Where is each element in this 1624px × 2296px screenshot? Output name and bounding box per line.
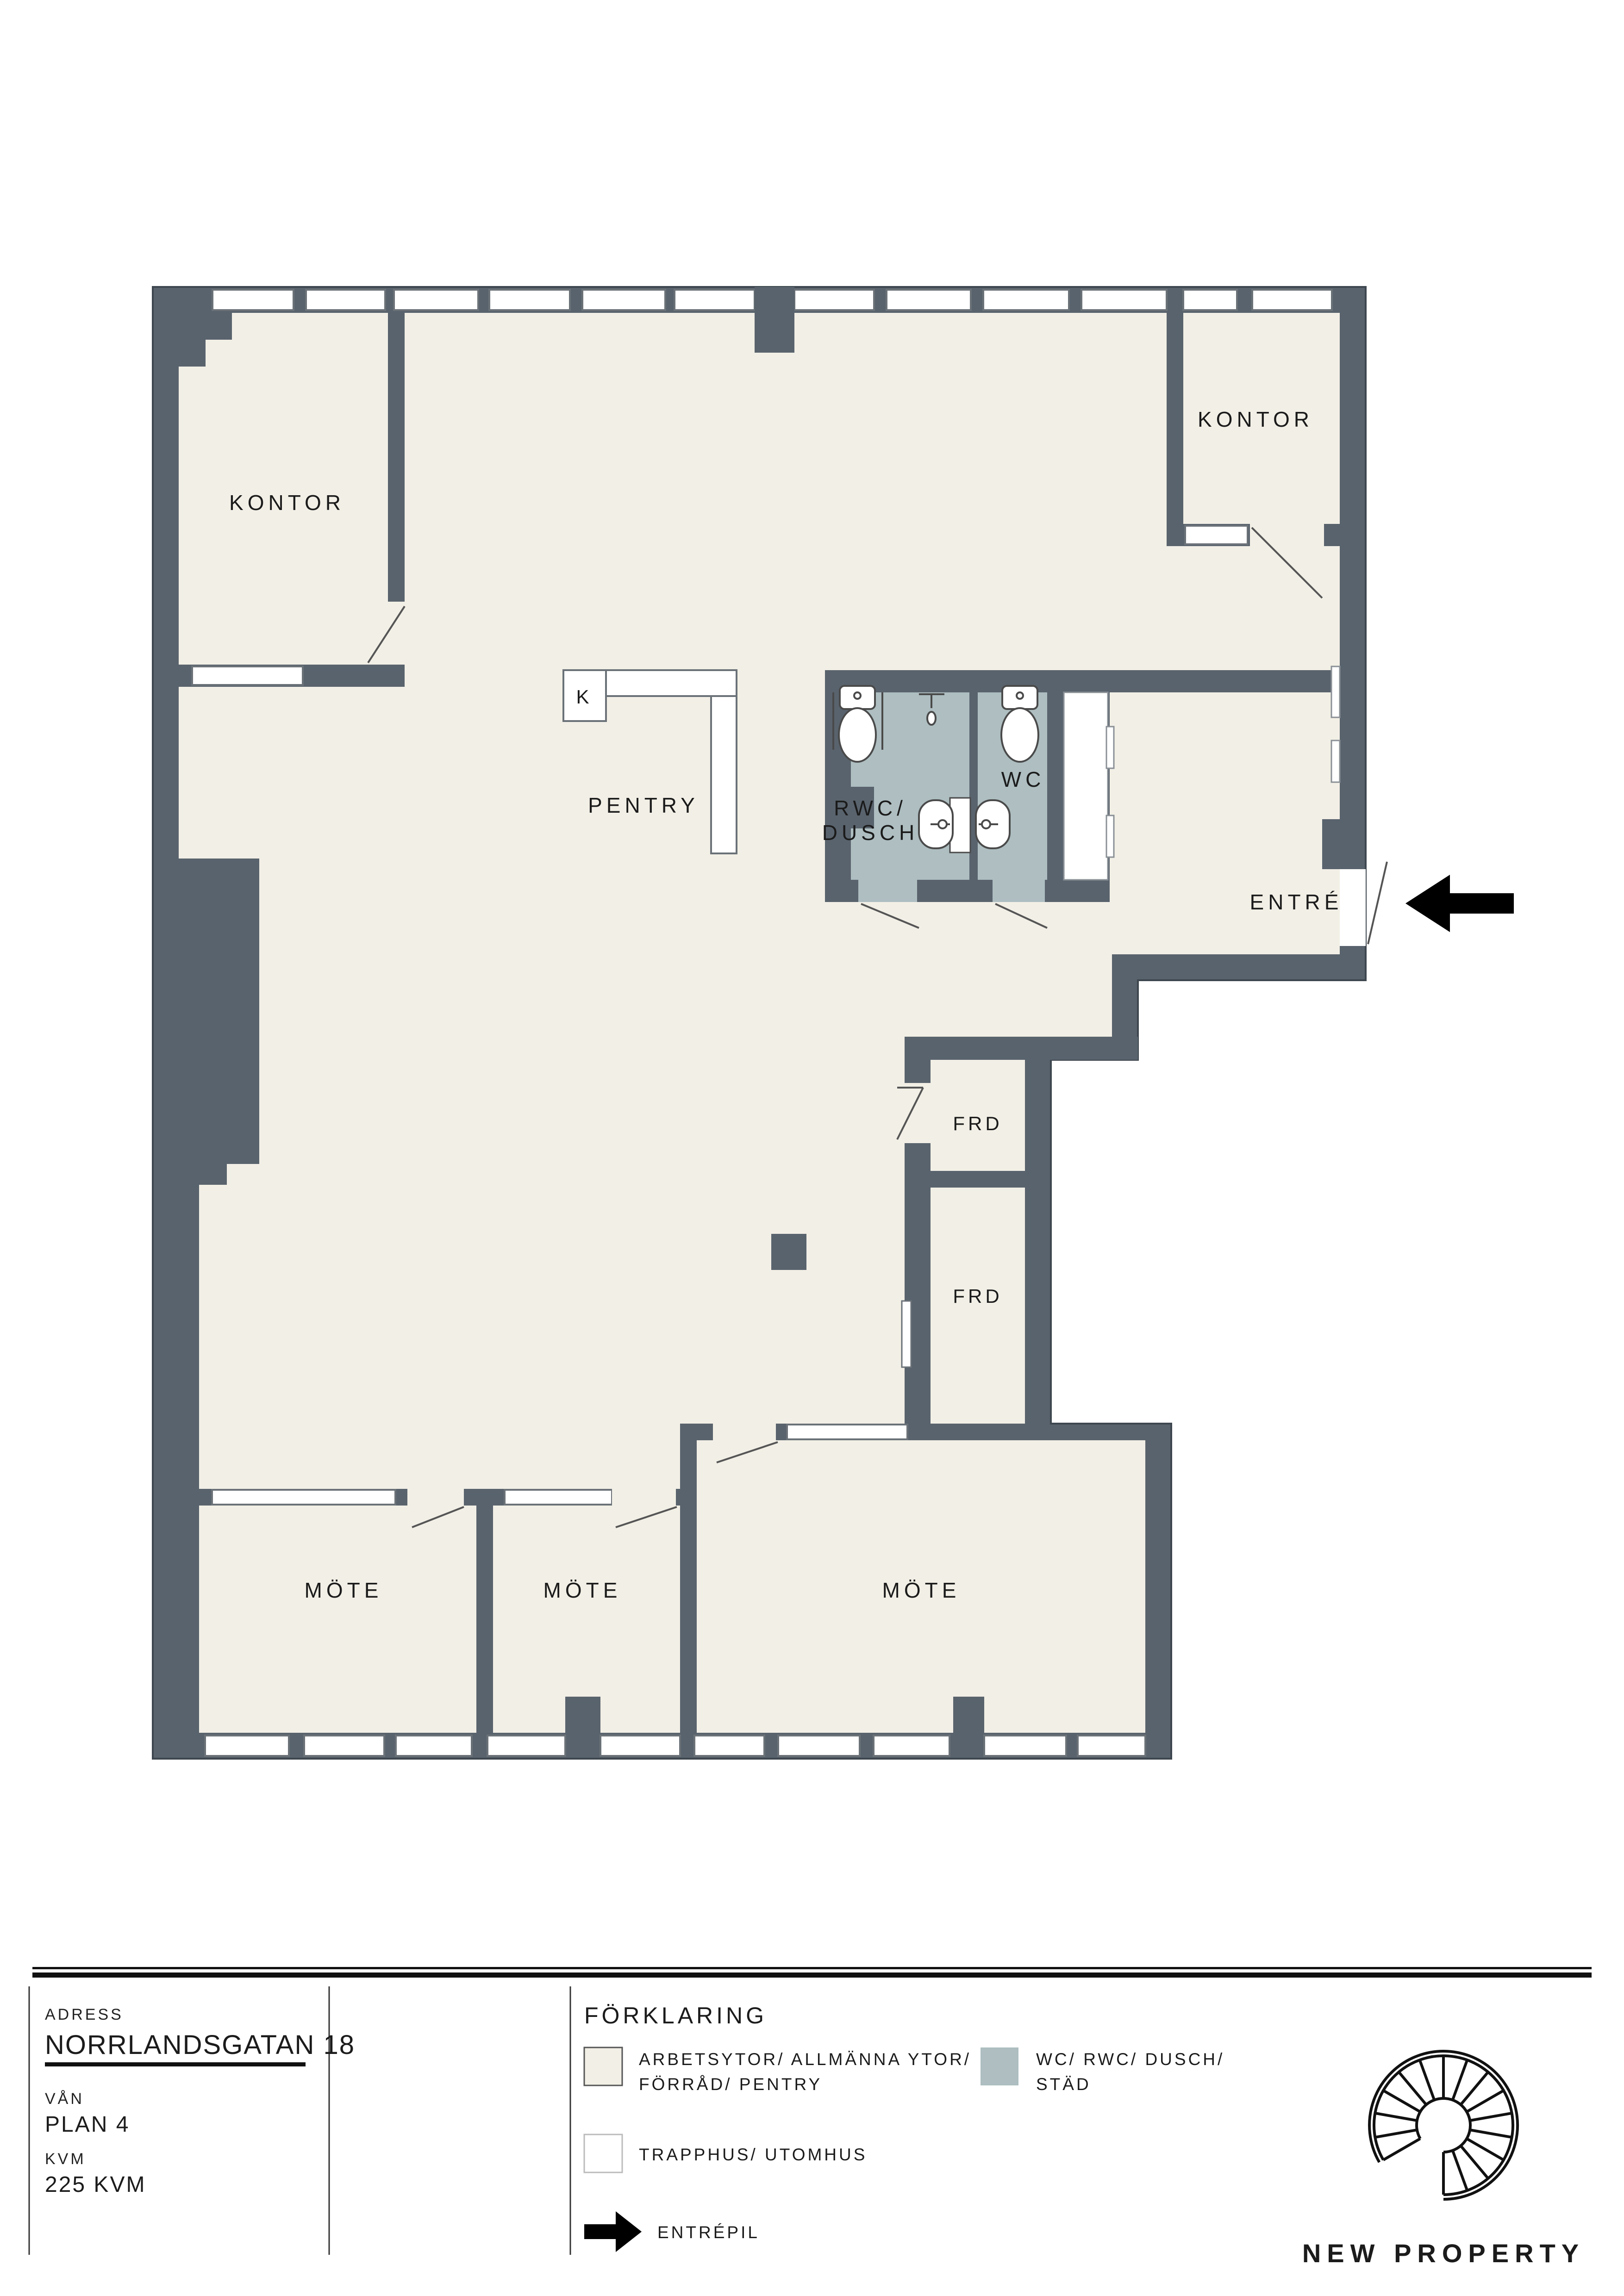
toilet-icon xyxy=(1001,686,1038,762)
entrance-arrow-icon xyxy=(1405,875,1514,932)
door-opening xyxy=(612,1489,676,1506)
room-label: KONTOR xyxy=(1198,407,1313,431)
kitchen-counter xyxy=(711,696,737,853)
window xyxy=(787,1425,907,1439)
wall xyxy=(476,1489,493,1733)
wall xyxy=(388,313,405,602)
adress-underline xyxy=(45,2062,306,2066)
window xyxy=(212,1490,395,1505)
door-opening xyxy=(407,1489,464,1506)
legend-item-label: ARBETSYTOR/ ALLMÄNNA YTOR/ xyxy=(639,2050,971,2069)
adress-label: ADRESS xyxy=(45,2006,124,2023)
room-label: DUSCH xyxy=(822,821,919,845)
legend: FÖRKLARING ARBETSYTOR/ ALLMÄNNA YTOR/ FÖ… xyxy=(584,2003,1224,2252)
legend-item-label: STÄD xyxy=(1036,2075,1091,2094)
legend-swatch-stairwell xyxy=(584,2134,622,2172)
shaft xyxy=(1064,692,1108,880)
legend-item-label: FÖRRÅD/ PENTRY xyxy=(639,2075,822,2094)
legend-item-label: TRAPPHUS/ UTOMHUS xyxy=(639,2145,867,2164)
divider-rule xyxy=(32,1967,1592,1969)
legend-swatch-work-areas xyxy=(584,2047,622,2085)
door-opening xyxy=(713,1424,776,1440)
room-label: FRD xyxy=(953,1285,1002,1307)
adress-value: NORRLANDSGATAN 18 xyxy=(45,2030,355,2060)
wall-step xyxy=(179,340,206,367)
room-label: MÖTE xyxy=(882,1578,961,1602)
door-leaf xyxy=(1368,862,1387,944)
window xyxy=(505,1490,612,1505)
radiator-mark xyxy=(1331,666,1340,717)
pillar xyxy=(565,1697,600,1733)
legend-title: FÖRKLARING xyxy=(584,2003,767,2028)
title-block: ADRESS NORRLANDSGATAN 18 VÅN PLAN 4 KVM … xyxy=(29,1967,1592,2255)
shaft-door-mark xyxy=(1106,727,1114,768)
legend-swatch-wet-rooms xyxy=(981,2047,1018,2085)
sink-icon xyxy=(919,800,953,848)
pillar xyxy=(953,1697,984,1733)
pillar xyxy=(755,287,794,353)
room-label: KONTOR xyxy=(229,491,345,515)
wall xyxy=(1167,313,1183,546)
door-opening xyxy=(1340,869,1366,946)
pillar xyxy=(771,1234,806,1270)
sink-icon xyxy=(976,800,1010,848)
room-label: MÖTE xyxy=(543,1578,622,1602)
wall xyxy=(1110,670,1340,692)
room-label: RWC/ xyxy=(834,796,907,820)
room-label: ENTRÉ xyxy=(1250,890,1343,914)
room-label: WC xyxy=(1001,767,1045,791)
legend-arrow-icon xyxy=(584,2211,642,2252)
kitchen-counter xyxy=(606,670,737,696)
toilet-icon xyxy=(839,686,876,762)
legend-item-label: WC/ RWC/ DUSCH/ xyxy=(1036,2050,1224,2069)
windows-bottom-facade xyxy=(205,1736,1145,1756)
room-label: FRD xyxy=(953,1113,1002,1134)
window xyxy=(192,666,303,685)
door-opening xyxy=(1250,524,1324,546)
spiral-staircase-icon xyxy=(1369,2051,1518,2199)
wall xyxy=(931,1171,1025,1188)
brand-block: NEW PROPERTY xyxy=(1302,2051,1585,2268)
sliding-door xyxy=(902,1301,911,1367)
legend-item-label: ENTRÉPIL xyxy=(657,2223,760,2242)
wall-step xyxy=(179,313,232,340)
shaft-door-mark xyxy=(1106,815,1114,857)
kvm-value: 225 KVM xyxy=(45,2172,146,2197)
floorplan-canvas: KONTOR KONTOR xyxy=(0,0,1624,2296)
room-label: MÖTE xyxy=(305,1578,383,1602)
van-label: VÅN xyxy=(45,2090,84,2108)
wall xyxy=(680,1424,697,1733)
brand-name: NEW PROPERTY xyxy=(1302,2239,1585,2268)
door-opening xyxy=(993,880,1045,902)
room-label: PENTRY xyxy=(588,793,699,817)
kitchen-label: K xyxy=(576,686,592,708)
door-opening xyxy=(905,1083,931,1143)
floorplan-page: KONTOR KONTOR xyxy=(0,0,1624,2296)
floorplan: KONTOR KONTOR xyxy=(153,287,1514,1759)
wall xyxy=(905,1037,1138,1060)
wall-step xyxy=(1322,819,1340,869)
door-opening xyxy=(858,880,917,902)
radiator-mark xyxy=(1331,740,1340,782)
divider-rule xyxy=(32,1972,1592,1978)
window xyxy=(1185,526,1248,544)
van-value: PLAN 4 xyxy=(45,2112,130,2137)
kvm-label: KVM xyxy=(45,2150,86,2168)
